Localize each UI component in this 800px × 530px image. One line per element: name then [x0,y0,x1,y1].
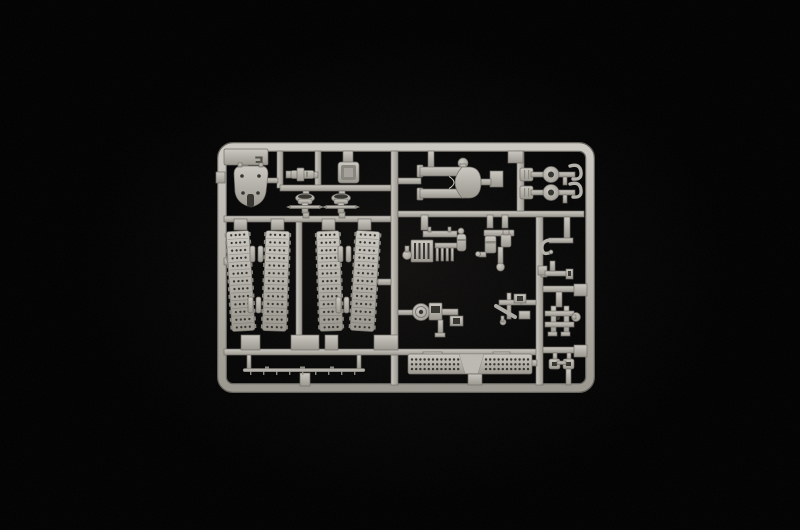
sprue-photo: E [0,0,800,530]
photo-stage: E [0,0,800,530]
film-grain-overlay [0,0,800,530]
